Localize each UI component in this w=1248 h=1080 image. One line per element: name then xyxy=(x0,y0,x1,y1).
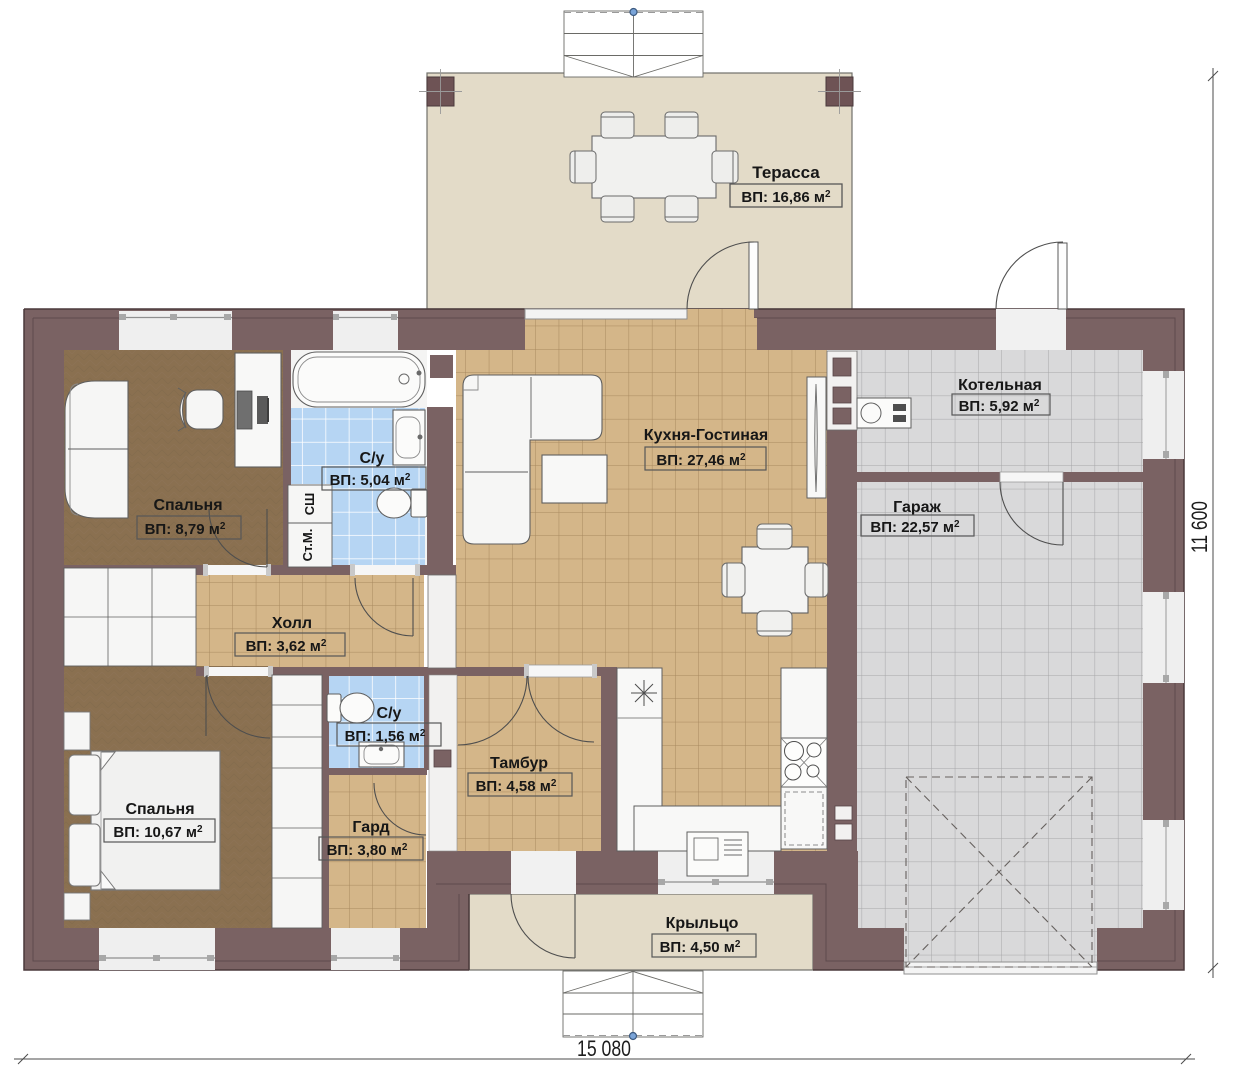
svg-text:С/у: С/у xyxy=(360,450,385,467)
svg-text:ВП: 3,62 м2: ВП: 3,62 м2 xyxy=(246,638,327,655)
svg-text:ВП: 8,79 м2: ВП: 8,79 м2 xyxy=(145,521,226,538)
svg-text:Гард: Гард xyxy=(352,819,389,836)
svg-text:15 080: 15 080 xyxy=(577,1036,631,1061)
svg-text:11 600: 11 600 xyxy=(1187,501,1212,553)
svg-text:ВП: 16,86 м2: ВП: 16,86 м2 xyxy=(741,189,831,206)
svg-text:СШ: СШ xyxy=(302,493,317,515)
svg-text:Тамбур: Тамбур xyxy=(490,755,548,772)
svg-text:С/у: С/у xyxy=(377,705,402,722)
svg-text:Ст.М.: Ст.М. xyxy=(300,529,315,562)
svg-text:Кухня-Гостиная: Кухня-Гостиная xyxy=(644,427,768,444)
svg-text:ВП: 4,58 м2: ВП: 4,58 м2 xyxy=(476,778,557,795)
svg-text:Холл: Холл xyxy=(272,615,312,632)
svg-text:ВП: 4,50 м2: ВП: 4,50 м2 xyxy=(660,939,741,956)
svg-text:Крыльцо: Крыльцо xyxy=(666,915,739,932)
svg-text:ВП: 5,04 м2: ВП: 5,04 м2 xyxy=(330,472,411,489)
svg-text:ВП: 27,46 м2: ВП: 27,46 м2 xyxy=(656,452,746,469)
svg-text:Гараж: Гараж xyxy=(893,499,941,516)
svg-text:ВП: 5,92 м2: ВП: 5,92 м2 xyxy=(959,398,1040,415)
svg-text:Терасса: Терасса xyxy=(752,163,820,182)
svg-text:ВП: 3,80 м2: ВП: 3,80 м2 xyxy=(327,842,408,859)
svg-text:Спальня: Спальня xyxy=(153,497,222,514)
svg-text:Котельная: Котельная xyxy=(958,377,1042,394)
svg-text:ВП: 1,56 м2: ВП: 1,56 м2 xyxy=(345,728,426,745)
svg-text:Спальня: Спальня xyxy=(125,801,194,818)
svg-text:ВП: 22,57 м2: ВП: 22,57 м2 xyxy=(870,519,960,536)
svg-text:ВП: 10,67 м2: ВП: 10,67 м2 xyxy=(113,824,203,841)
